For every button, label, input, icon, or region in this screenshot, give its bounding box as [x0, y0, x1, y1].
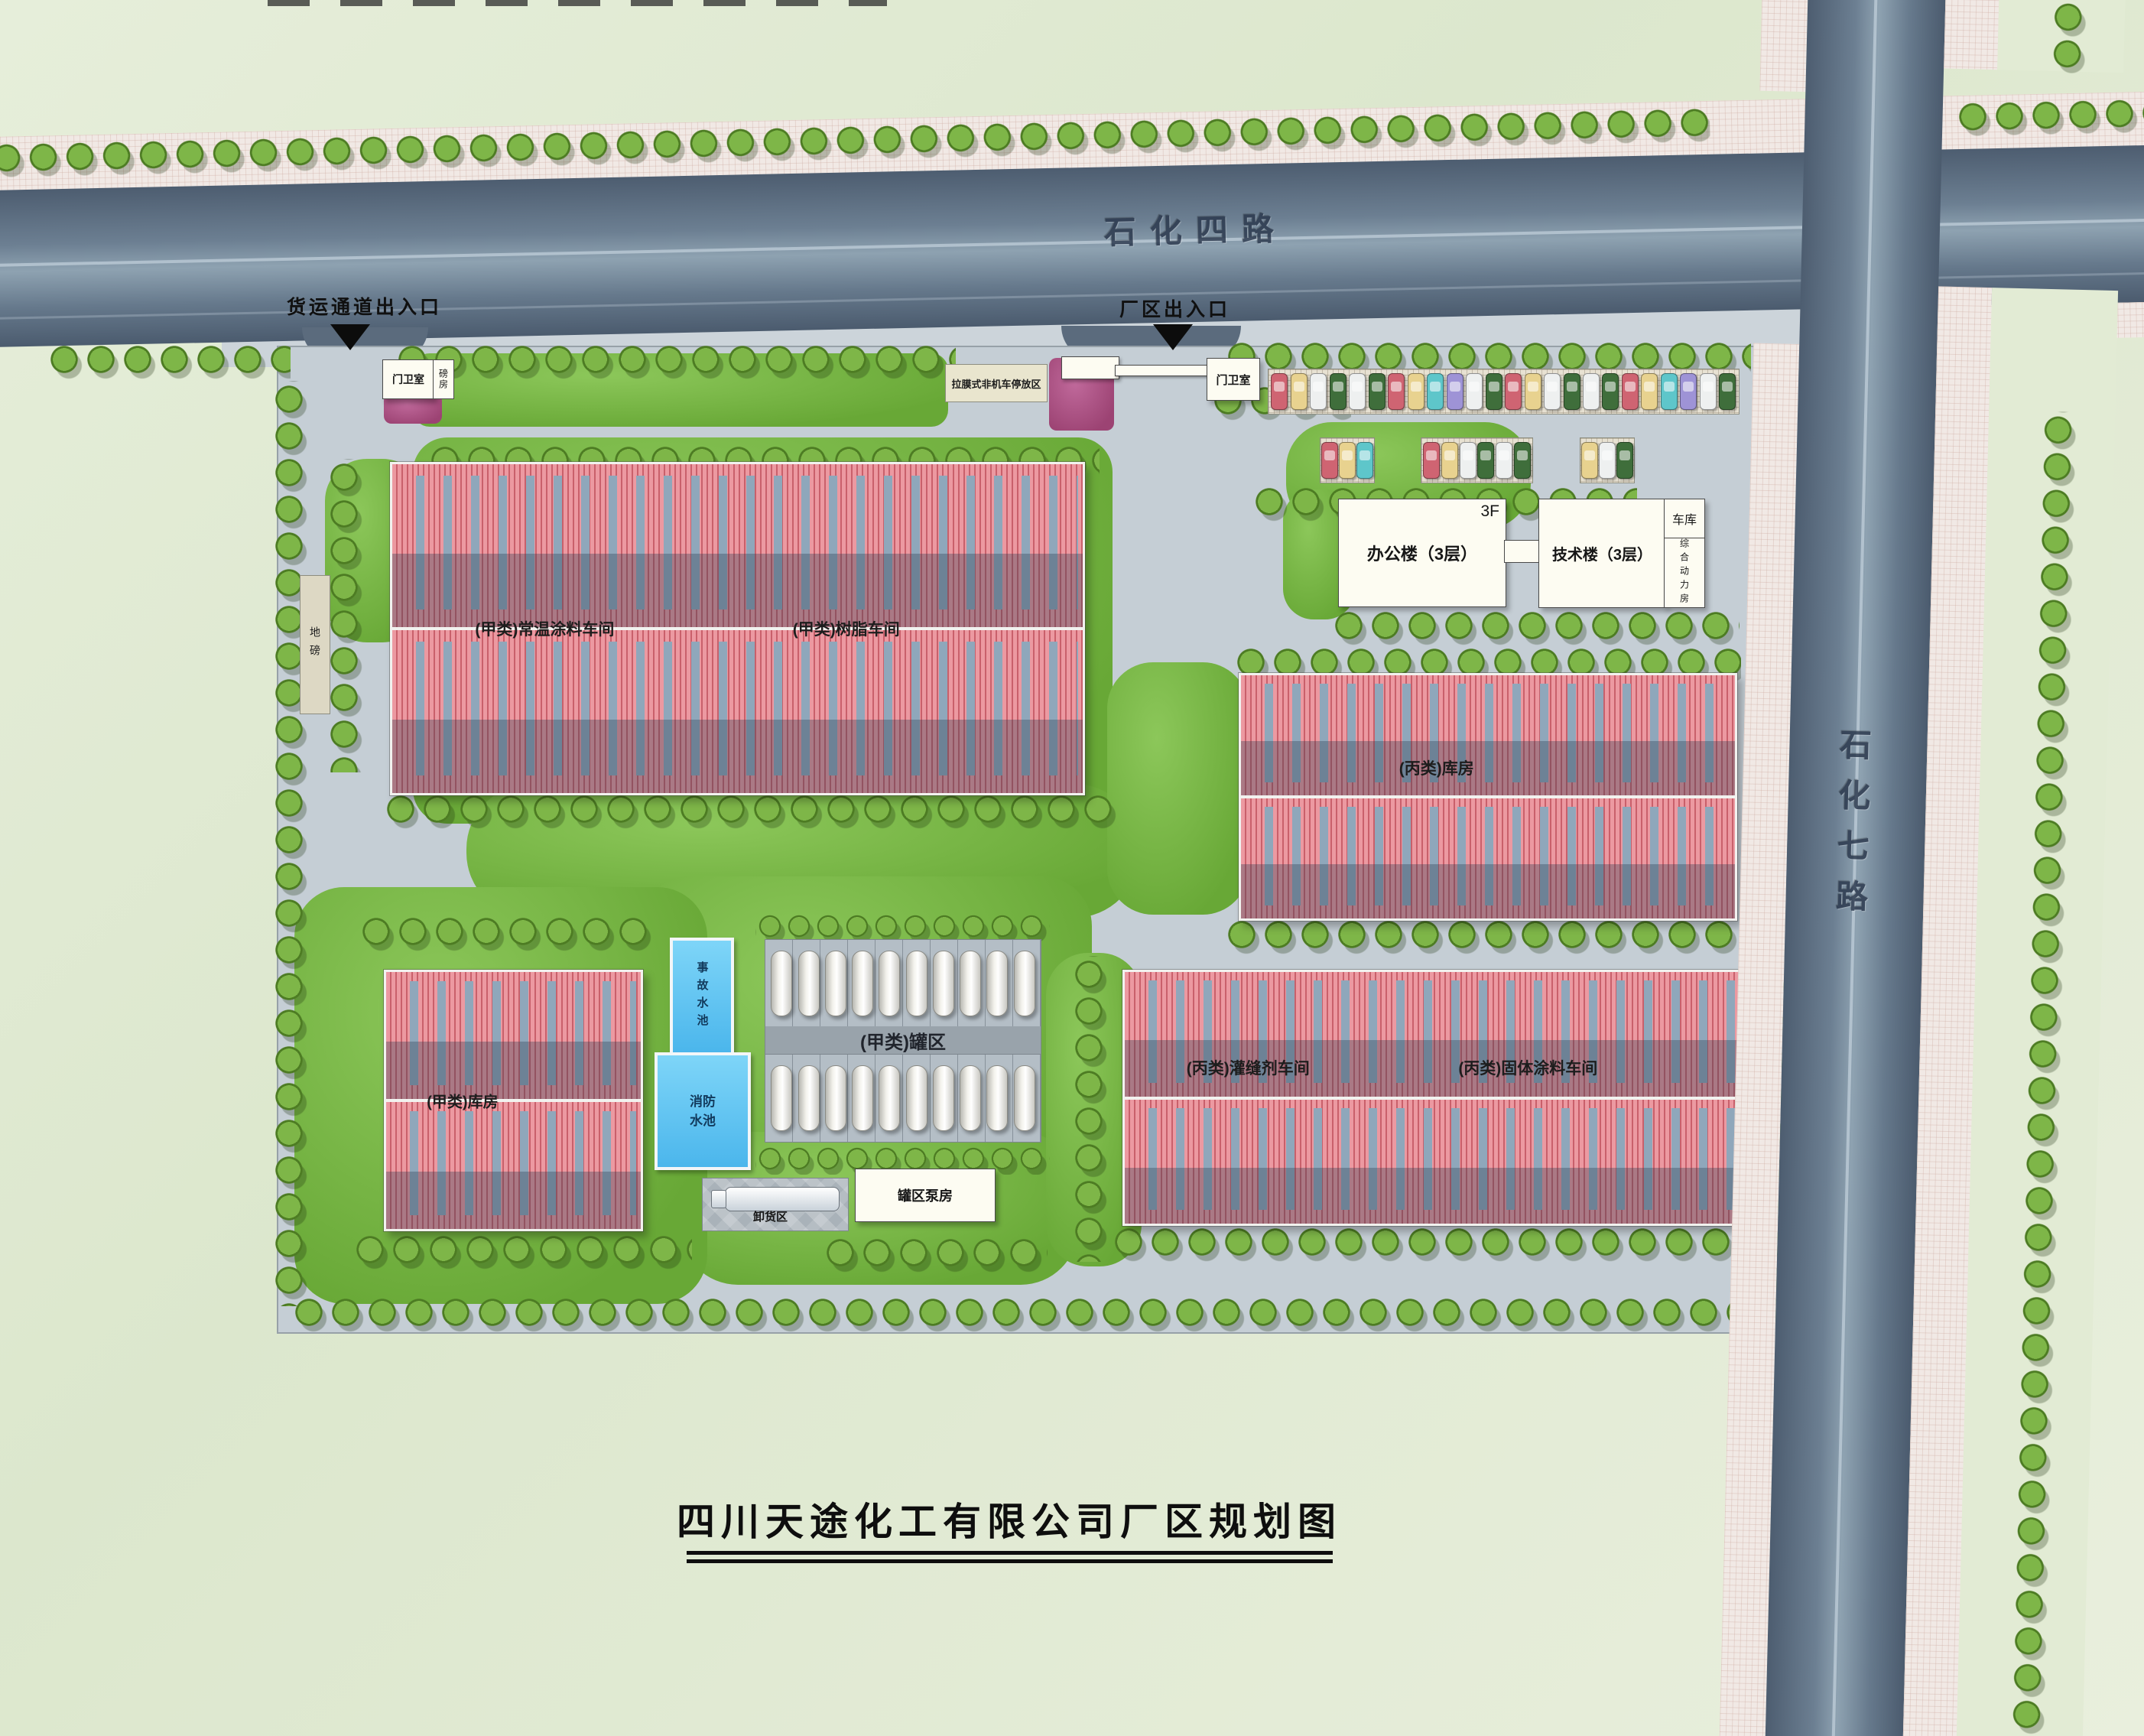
label-unloading: 卸货区: [753, 1208, 788, 1224]
building-labels: (甲类)常温涂料车间 (甲类)树脂车间: [392, 464, 1083, 793]
storage-tank-icon: [1014, 1065, 1035, 1131]
car-icon: [1427, 373, 1444, 410]
weigh-room: 磅房: [433, 359, 454, 399]
storage-tank-icon: [879, 1065, 900, 1131]
car-icon: [1369, 373, 1385, 410]
label-main-entrance: 厂区出入口: [1119, 294, 1230, 322]
label-accident-pool: 事故水池: [694, 961, 710, 1032]
car-icon: [1680, 373, 1697, 410]
label-fire-pool: 消防水池: [687, 1092, 718, 1131]
building-tech: 技术楼（3层）: [1538, 499, 1666, 608]
storage-tank-icon: [879, 951, 900, 1016]
car-icon: [1525, 373, 1541, 410]
car-icon: [1408, 373, 1424, 410]
car-icon: [1447, 373, 1463, 410]
building-office: 办公楼（3层） 3F: [1338, 499, 1506, 607]
car-icon: [1602, 373, 1619, 410]
car-icon: [1441, 442, 1458, 479]
lawn-north-strip: [413, 353, 948, 427]
office-connector: [1504, 540, 1541, 563]
storage-tank-icon: [933, 951, 954, 1016]
storage-tank-icon: [906, 951, 927, 1016]
car-icon: [1388, 373, 1405, 410]
weighbridge-strip: 地磅: [300, 575, 330, 714]
storage-tank-icon: [771, 951, 792, 1016]
tanker-truck-cab-icon: [711, 1190, 726, 1208]
car-icon: [1321, 442, 1338, 479]
label-garage: 车库: [1672, 509, 1697, 528]
car-icon: [1505, 373, 1522, 410]
label-tech: 技术楼（3层）: [1552, 542, 1652, 564]
accident-water-pool: 事故水池: [670, 938, 734, 1055]
label-weighbridge: 地磅: [307, 626, 323, 663]
fire-water-pool: 消防水池: [655, 1052, 751, 1170]
building-labels: (丙类)灌缝剂车间 (丙类)固体涂料车间: [1125, 972, 1743, 1224]
storage-tank-icon: [1014, 951, 1035, 1016]
gatehouse-1: 门卫室: [382, 359, 434, 399]
car-icon: [1310, 373, 1327, 410]
tank-farm-row-south: [765, 1054, 1041, 1143]
car-icon: [1622, 373, 1639, 410]
building-labels: (甲类)库房: [386, 972, 641, 1229]
site-plan-canvas: 石化四路 (甲类)常温涂料车间 (甲类)树脂车间: [0, 0, 2144, 1736]
label-power-house: 综合动力房: [1678, 538, 1691, 607]
car-icon: [1349, 373, 1366, 410]
building-warehouse-a: (甲类)库房: [384, 970, 643, 1231]
sidewalk-right-west-top: [1759, 0, 1808, 92]
storage-tank-icon: [771, 1065, 792, 1131]
pump-house: 罐区泵房: [855, 1169, 996, 1222]
title-underline: [687, 1551, 1333, 1563]
storage-tank-icon: [986, 1065, 1008, 1131]
car-icon: [1271, 373, 1288, 410]
building-garage-power: 车库 综合动力房: [1664, 499, 1705, 608]
car-icon: [1460, 442, 1476, 479]
top-cropped-text-artifact: [268, 0, 887, 6]
road-label-shihua-7: 石化七路: [1826, 727, 1877, 930]
tank-farm-row-north: [765, 939, 1041, 1028]
car-icon: [1544, 373, 1561, 410]
car-icon: [1486, 373, 1502, 410]
label-workshop-resin: (甲类)树脂车间: [793, 617, 900, 640]
car-icon: [1514, 442, 1531, 479]
label-weigh-room: 磅房: [437, 369, 450, 390]
car-icon: [1496, 442, 1512, 479]
parking-lot-small-1: [1320, 437, 1375, 483]
storage-tank-icon: [798, 951, 820, 1016]
power-house-cell: 综合动力房: [1665, 538, 1704, 607]
garage-cell: 车库: [1665, 499, 1704, 538]
label-tank-area: (甲类)罐区: [860, 1027, 946, 1054]
label-warehouse-a: (甲类)库房: [427, 1090, 498, 1112]
car-icon: [1599, 442, 1616, 479]
label-workshop-sealant: (丙类)灌缝剂车间: [1187, 1056, 1310, 1079]
main-entrance-arrow-icon: [1153, 324, 1193, 350]
car-icon: [1466, 373, 1483, 410]
storage-tank-icon: [906, 1065, 927, 1131]
car-icon: [1291, 373, 1308, 410]
storage-tank-icon: [825, 1065, 846, 1131]
label-office-3f: 3F: [1480, 502, 1499, 521]
parking-lot-small-3: [1580, 437, 1635, 483]
car-icon: [1339, 442, 1356, 479]
label-workshop-coating: (甲类)常温涂料车间: [475, 617, 614, 640]
car-icon: [1583, 373, 1600, 410]
storage-tank-icon: [986, 951, 1008, 1016]
car-icon: [1661, 373, 1678, 410]
building-workshop-south: (丙类)灌缝剂车间 (丙类)固体涂料车间: [1122, 970, 1745, 1226]
lawn-west-of-warehouse-c: [1107, 662, 1249, 915]
storage-tank-icon: [852, 1065, 873, 1131]
car-icon: [1330, 373, 1346, 410]
storage-tank-icon: [825, 951, 846, 1016]
car-icon: [1719, 373, 1736, 410]
storage-tank-icon: [852, 951, 873, 1016]
storage-tank-icon: [798, 1065, 820, 1131]
label-office: 办公楼（3层）: [1367, 541, 1477, 565]
car-icon: [1641, 373, 1658, 410]
car-icon: [1564, 373, 1580, 410]
car-icon: [1581, 442, 1598, 479]
building-workshop-north: (甲类)常温涂料车间 (甲类)树脂车间: [390, 462, 1085, 795]
building-labels: (丙类)库房: [1241, 675, 1735, 918]
gate-weighbridge-unit: [1061, 356, 1119, 379]
sidewalk-right-east-top: [1944, 0, 1999, 70]
storage-tank-icon: [960, 1065, 981, 1131]
car-icon: [1423, 442, 1440, 479]
canopy-parking-pad: 拉膜式非机车停放区: [945, 364, 1048, 402]
parking-lot-main: [1268, 369, 1740, 414]
verge-right-east-top: [1997, 0, 2126, 73]
road-right-group: 石化七路: [1759, 0, 2126, 1736]
gatehouse-2: 门卫室: [1207, 358, 1260, 401]
car-icon: [1700, 373, 1717, 410]
label-workshop-solid: (丙类)固体涂料车间: [1458, 1056, 1597, 1079]
car-icon: [1616, 442, 1633, 479]
label-freight-entrance: 货运通道出入口: [287, 292, 442, 320]
label-gatehouse-1: 门卫室: [392, 372, 424, 387]
gate-barrier: [1115, 365, 1210, 376]
storage-tank-icon: [960, 951, 981, 1016]
road-label-shihua-4: 石化四路: [1103, 203, 1288, 253]
label-canopy-parking: 拉膜式非机车停放区: [951, 376, 1041, 391]
plan-title: 四川天途化工有限公司厂区规划图: [665, 1491, 1353, 1546]
label-gatehouse-2: 门卫室: [1216, 372, 1250, 388]
car-icon: [1477, 442, 1494, 479]
tank-farm-center-band: (甲类)罐区: [765, 1026, 1041, 1054]
storage-tank-icon: [933, 1065, 954, 1131]
label-warehouse-c: (丙类)库房: [1399, 756, 1474, 779]
parking-lot-small-2: [1421, 437, 1533, 483]
car-icon: [1356, 442, 1373, 479]
freight-entrance-arrow-icon: [330, 324, 370, 350]
label-pump-house: 罐区泵房: [898, 1185, 953, 1205]
building-warehouse-c: (丙类)库房: [1239, 673, 1737, 921]
